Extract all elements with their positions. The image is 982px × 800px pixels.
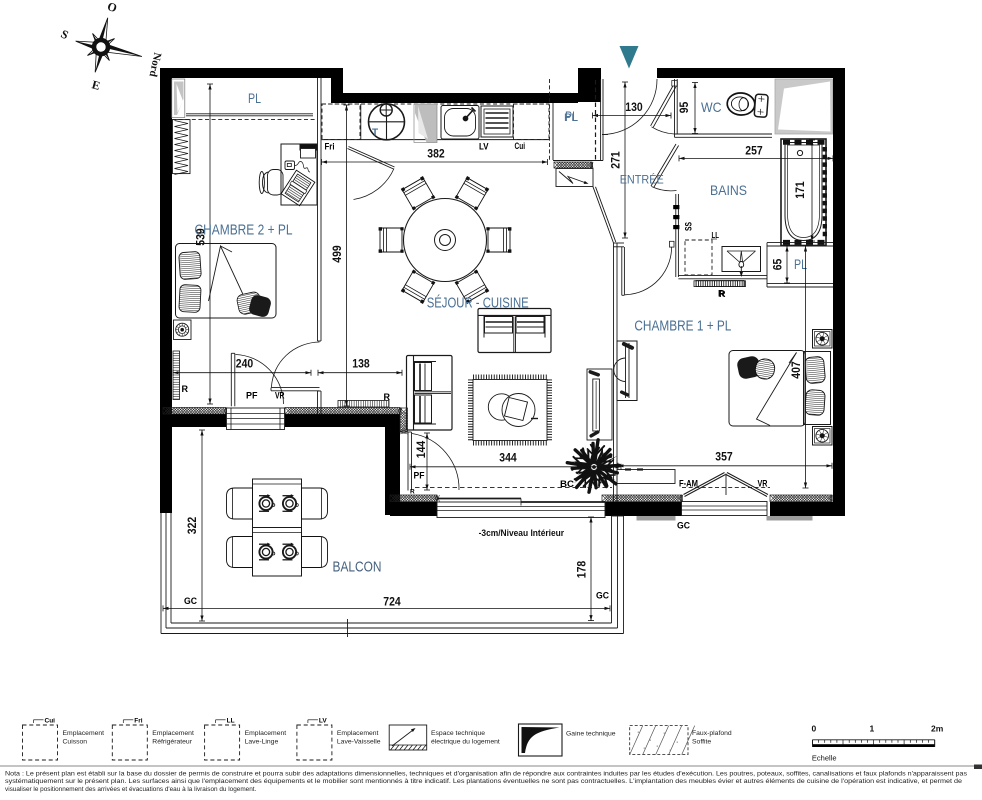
svg-text:LV: LV [319,718,327,725]
svg-text:Lave-Linge: Lave-Linge [245,739,279,746]
svg-text:BAINS: BAINS [710,183,747,198]
svg-text:LL: LL [712,230,720,240]
svg-text:WC: WC [701,99,722,115]
svg-text:Emplacement: Emplacement [337,730,379,737]
svg-text:357: 357 [715,450,733,464]
svg-text:1: 1 [870,724,875,734]
svg-text:ENTRÉE: ENTRÉE [620,171,664,186]
svg-text:Lave-Vaisselle: Lave-Vaisselle [337,739,381,746]
svg-text:Echelle: Echelle [812,754,837,763]
svg-text:BC: BC [560,479,575,489]
svg-text:407: 407 [789,361,803,379]
svg-text:R: R [182,384,189,394]
svg-text:Gaine technique: Gaine technique [566,731,616,738]
svg-text:178: 178 [575,561,589,579]
svg-text:VR: VR [758,478,768,488]
svg-text:344: 344 [499,451,517,465]
svg-text:VR: VR [275,390,285,400]
svg-text:systématiquement sur le présen: systématiquement sur le présent plan. Le… [5,778,962,785]
svg-text:R: R [410,489,415,496]
svg-text:GC: GC [184,596,197,606]
svg-text:LV: LV [479,141,489,151]
svg-text:Emplacement: Emplacement [152,730,194,737]
svg-text:Nota : Le présent plan est éta: Nota : Le présent plan est établi sur la… [5,770,967,777]
svg-text:GC: GC [596,591,609,601]
svg-text:0: 0 [812,724,817,734]
svg-text:Soffite: Soffite [692,739,711,746]
svg-text:visualiser le positionnement d: visualiser le positionnement des arrivée… [5,786,257,793]
svg-text:SS: SS [684,222,694,231]
svg-text:Réfrigérateur: Réfrigérateur [152,739,192,746]
svg-text:SÉJOUR - CUISINE: SÉJOUR - CUISINE [427,294,529,311]
svg-text:Cui: Cui [515,141,526,151]
svg-text:Emplacement: Emplacement [245,730,287,737]
svg-text:Fri: Fri [325,142,335,152]
svg-text:PL: PL [248,91,261,106]
svg-text:PF: PF [246,390,258,400]
svg-text:130: 130 [625,100,643,114]
svg-text:271: 271 [609,151,623,169]
svg-text:Fri: Fri [134,718,143,725]
svg-text:171: 171 [793,181,807,199]
svg-text:LL: LL [227,718,235,725]
svg-text:GC: GC [677,521,690,531]
svg-text:R: R [719,289,726,299]
svg-text:CHAMBRE 2 + PL: CHAMBRE 2 + PL [195,222,293,239]
svg-text:Cuisson: Cuisson [63,739,88,746]
svg-text:95: 95 [677,101,691,113]
svg-text:R: R [384,392,391,402]
svg-text:499: 499 [330,245,344,263]
svg-text:T: T [372,128,378,139]
svg-text:électrique du logement: électrique du logement [431,739,500,746]
svg-text:144: 144 [414,441,428,459]
svg-text:138: 138 [352,357,370,371]
svg-text:Espace technique: Espace technique [431,730,485,737]
svg-text:382: 382 [427,147,445,161]
svg-text:CHAMBRE 1 + PL: CHAMBRE 1 + PL [634,317,731,334]
svg-text:PF: PF [414,471,425,481]
svg-text:BALCON: BALCON [333,559,382,576]
svg-text:240: 240 [236,357,254,371]
svg-text:Cui: Cui [45,718,56,725]
svg-text:Emplacement: Emplacement [63,730,105,737]
svg-text:Faux-plafond: Faux-plafond [692,730,732,737]
svg-text:PL: PL [565,109,578,124]
svg-text:65: 65 [771,258,785,270]
svg-text:-3cm/Niveau Intérieur: -3cm/Niveau Intérieur [479,528,565,538]
svg-text:257: 257 [745,144,763,158]
svg-text:322: 322 [185,517,199,535]
svg-text:724: 724 [383,595,401,609]
svg-text:F-AM: F-AM [679,478,698,488]
svg-text:2m: 2m [931,724,944,734]
